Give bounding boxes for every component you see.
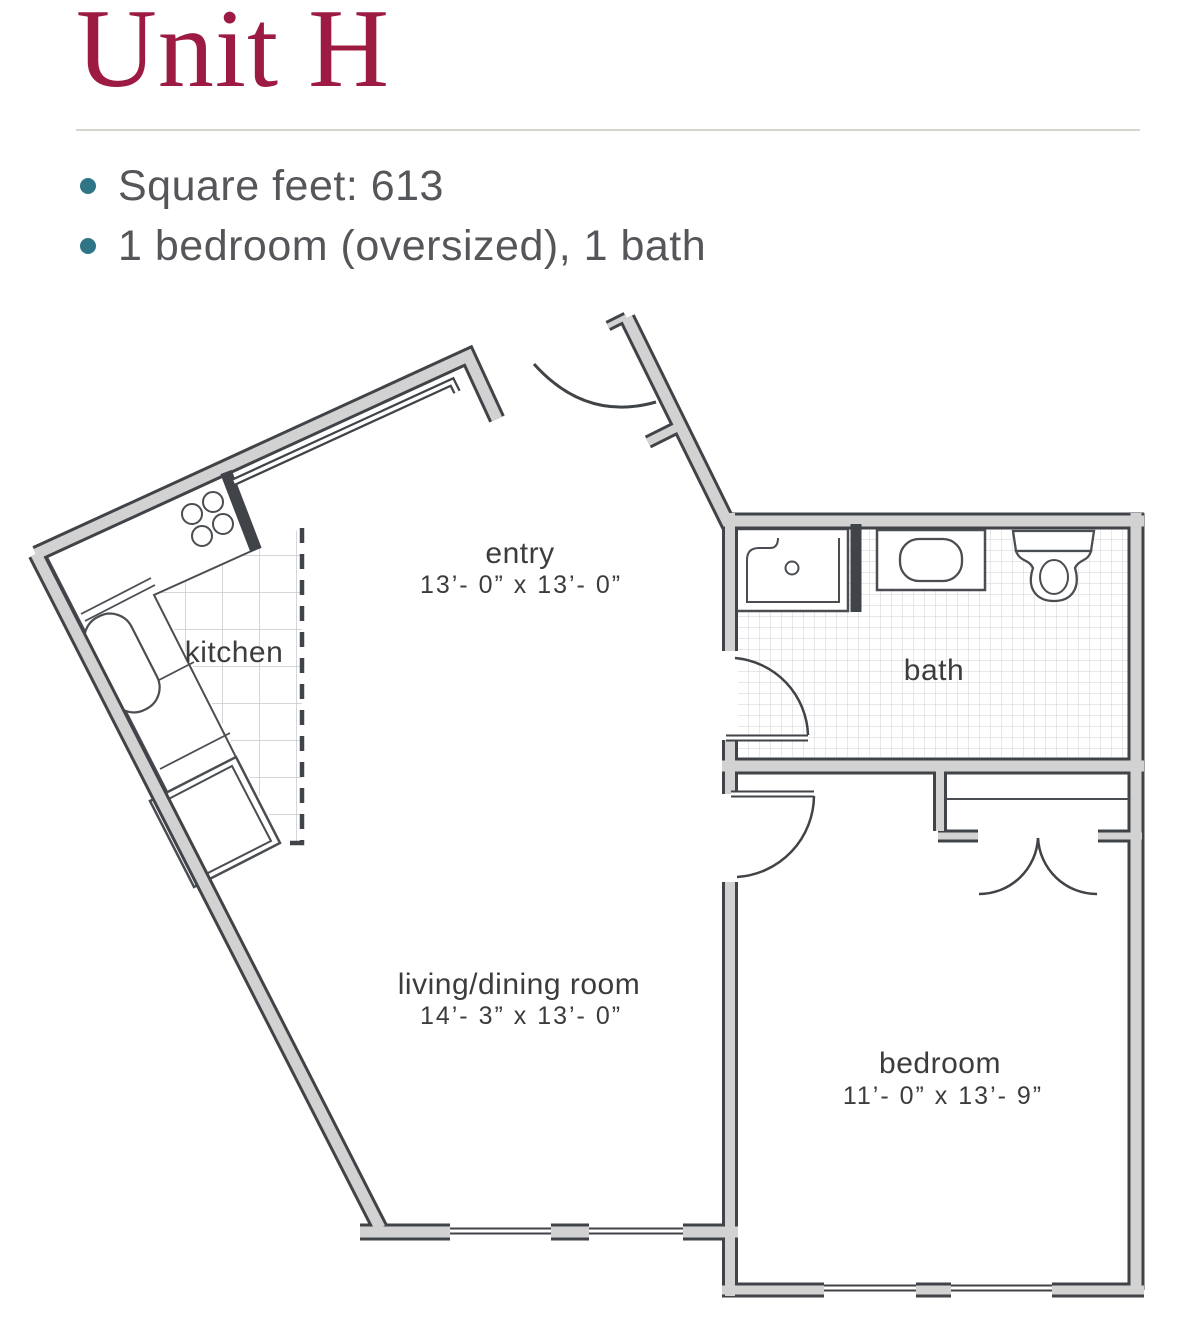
list-item: Square feet: 613	[80, 156, 706, 216]
list-item: 1 bedroom (oversized), 1 bath	[80, 216, 706, 276]
bath-label: bath	[904, 654, 964, 687]
bedroom-label: bedroom	[879, 1047, 1001, 1080]
page-title: Unit H	[76, 0, 390, 111]
summary-square-feet: Square feet: 613	[118, 162, 444, 211]
floorplan-drawing: entry 13’- 0” x 13’- 0” kitchen bath liv…	[0, 280, 1200, 1330]
living-label: living/dining room	[398, 968, 640, 1001]
entry-door	[534, 364, 656, 407]
kitchen-label: kitchen	[185, 636, 284, 669]
unit-summary-list: Square feet: 613 1 bedroom (oversized), …	[80, 156, 706, 276]
living-dims: 14’- 3” x 13’- 0”	[420, 1002, 622, 1030]
divider-rule	[76, 129, 1140, 131]
summary-bed-bath: 1 bedroom (oversized), 1 bath	[118, 222, 706, 271]
bath-sink-vanity	[877, 530, 985, 590]
bedroom-door	[731, 794, 814, 877]
bath-shower	[734, 529, 848, 611]
bedroom-dims: 11’- 0” x 13’- 9”	[843, 1082, 1043, 1110]
closet-double-doors	[979, 838, 1097, 894]
entry-label: entry	[485, 537, 554, 570]
bullet-icon	[80, 178, 96, 194]
bullet-icon	[80, 238, 96, 254]
entry-dims: 13’- 0” x 13’- 0”	[420, 571, 622, 599]
